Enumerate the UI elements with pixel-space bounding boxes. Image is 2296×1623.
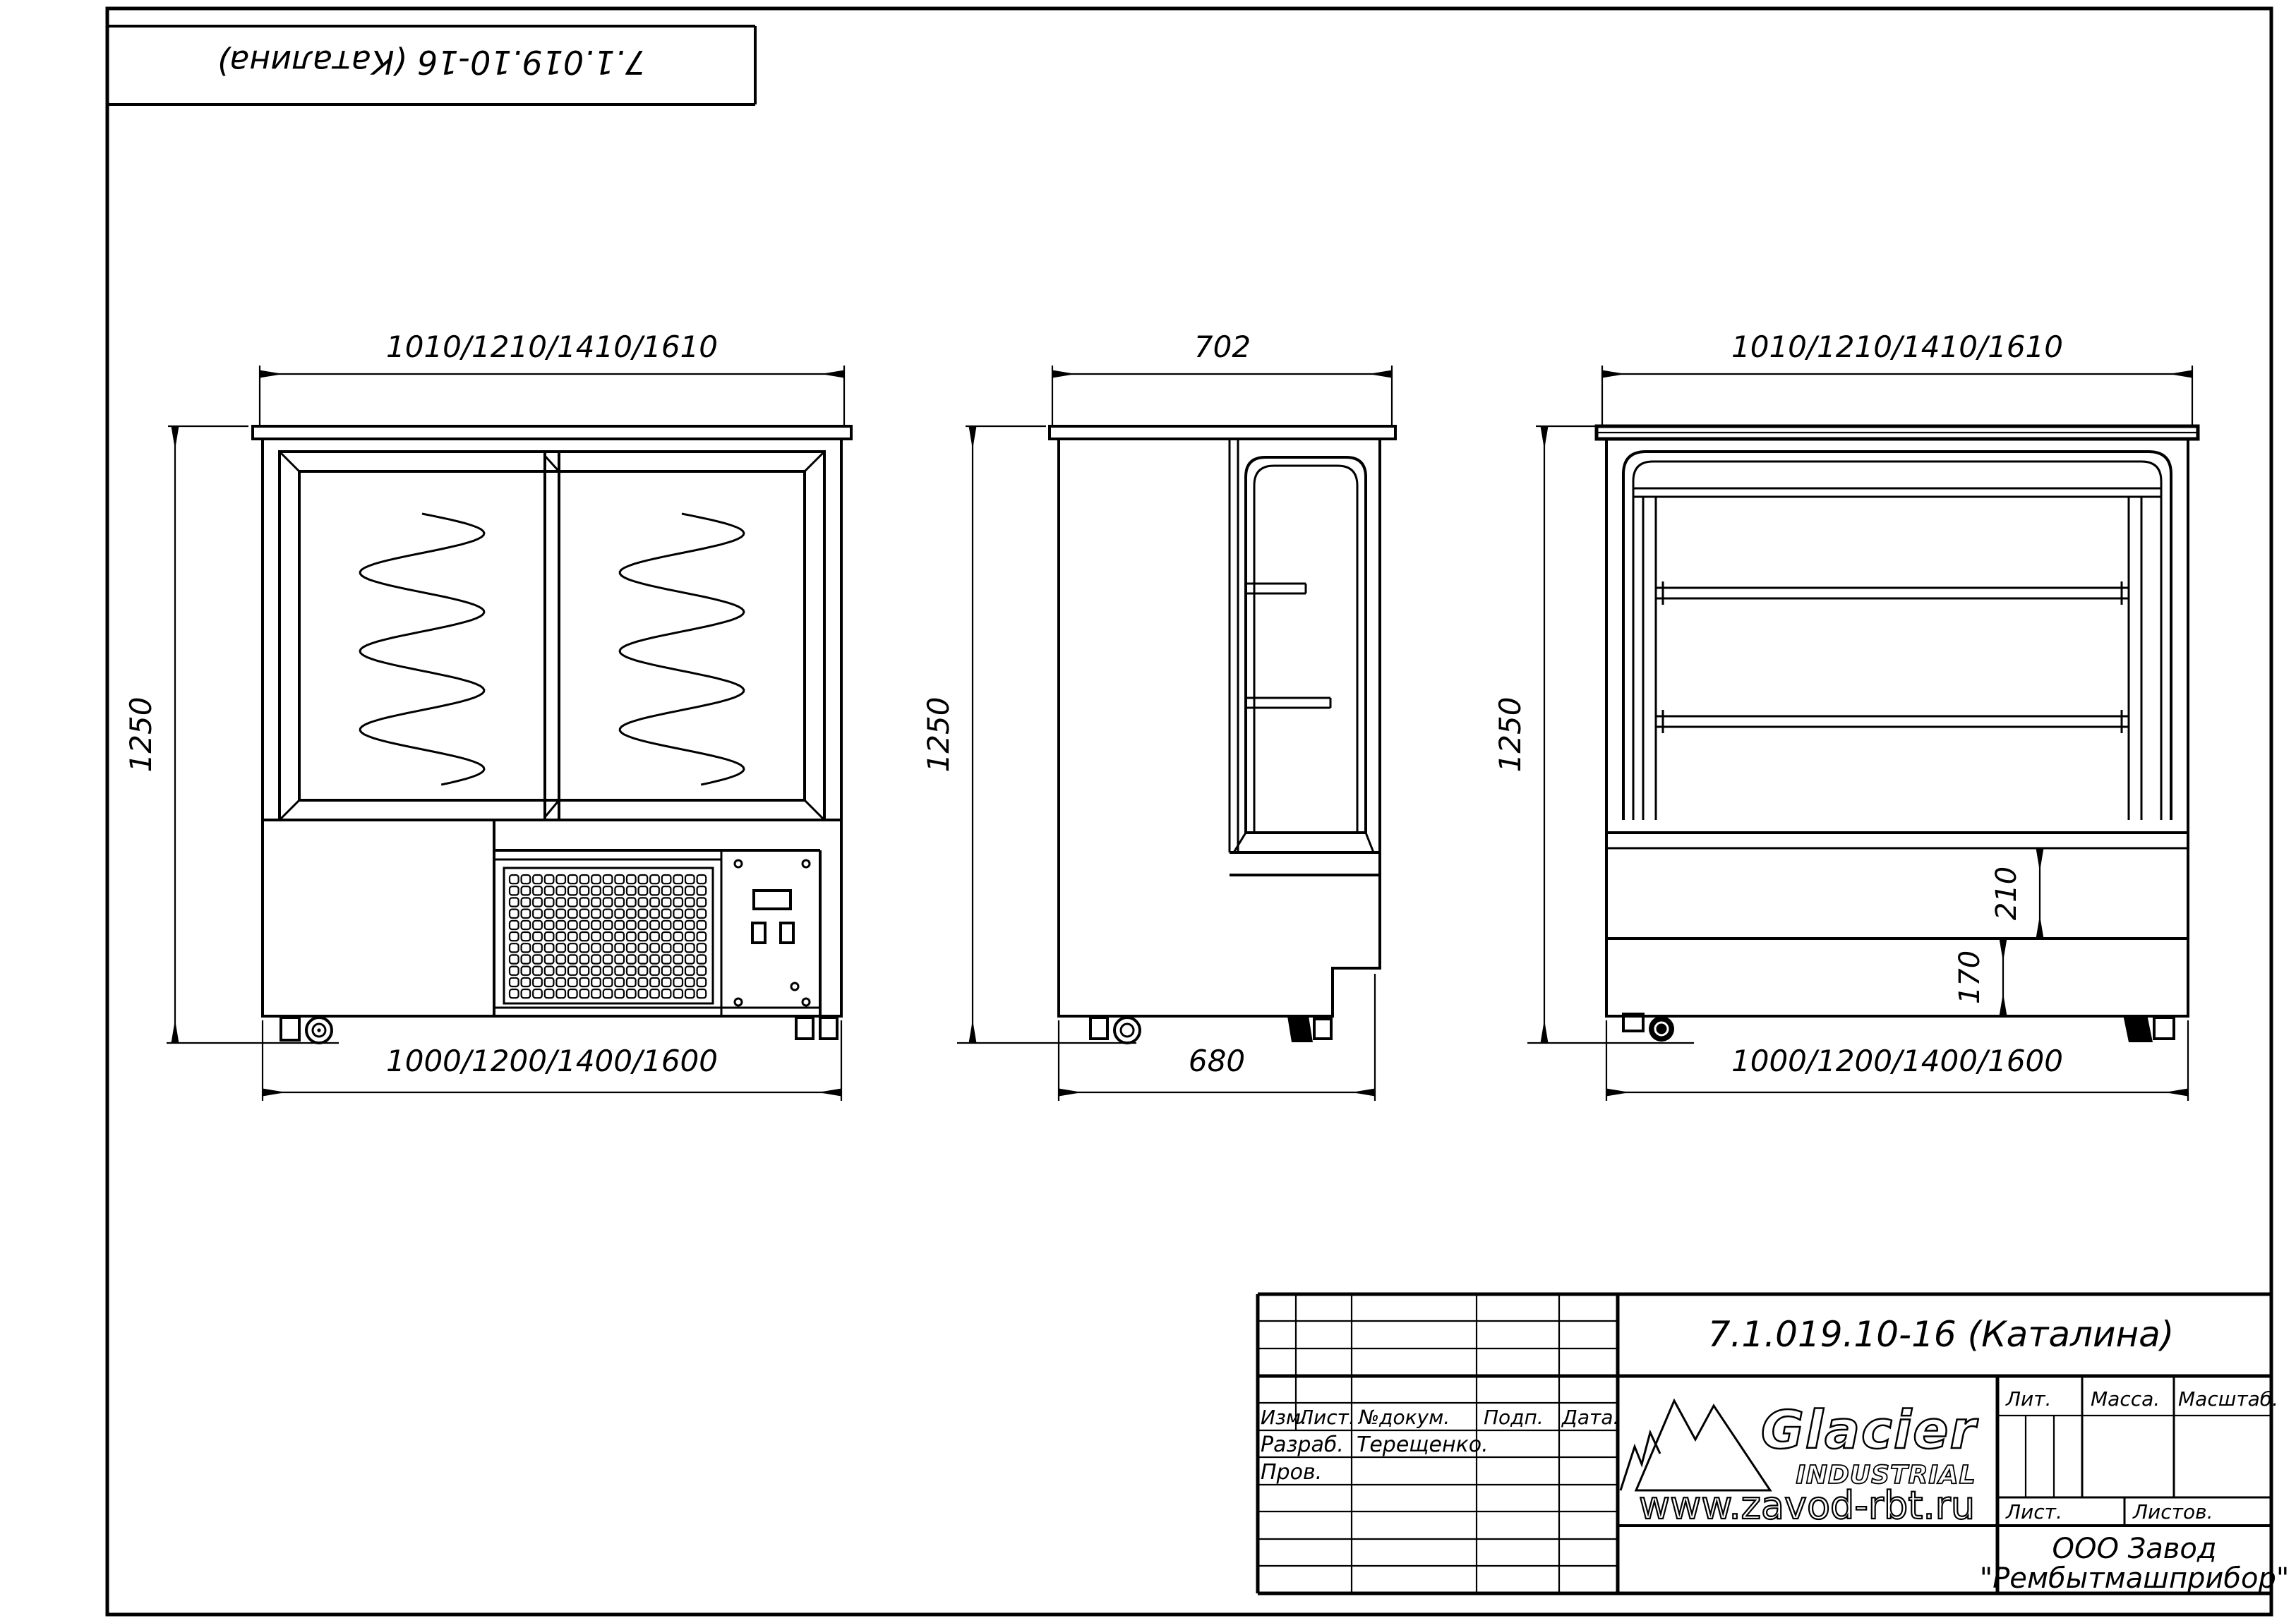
col-sign: Подп. bbox=[1484, 1406, 1544, 1429]
screw bbox=[735, 998, 742, 1006]
logo-website: www.zavod-rbt.ru bbox=[1639, 1483, 1975, 1528]
prop-sheets: Листов. bbox=[2132, 1500, 2213, 1524]
rear-width-top-dim: 1010/1210/1410/1610 bbox=[1731, 330, 2063, 364]
front-width-bottom-dim: 1000/1200/1400/1600 bbox=[386, 1044, 718, 1078]
col-doc: №докум. bbox=[1357, 1406, 1450, 1429]
rear-casters bbox=[1623, 1014, 2174, 1042]
rear-view: 1010/1210/1410/1610 1250 210 170 1000/12… bbox=[1493, 330, 2198, 1101]
control-panel bbox=[735, 860, 810, 1006]
glacier-logo: Glacier INDUSTRIAL www.zavod-rbt.ru bbox=[1621, 1400, 1978, 1528]
role-developed: Разраб. bbox=[1261, 1432, 1344, 1457]
prop-lit: Лит. bbox=[2005, 1387, 2051, 1411]
rear-base-lower-dim: 170 bbox=[1954, 951, 1986, 1004]
screw bbox=[803, 998, 810, 1006]
col-list: Лист. bbox=[1298, 1406, 1355, 1429]
inverted-designation-stamp: 7.1.019.10-16 (Каталина) bbox=[107, 26, 755, 104]
side-depth-bottom-dim: 680 bbox=[1189, 1044, 1245, 1078]
company-line2: "Рембытмашприбор" bbox=[1980, 1562, 2290, 1595]
col-date: Дата. bbox=[1561, 1406, 1619, 1429]
controller-display bbox=[754, 891, 791, 909]
role-developed-by: Терещенко. bbox=[1357, 1432, 1489, 1457]
company-line1: ООО Завод bbox=[2052, 1533, 2216, 1565]
vent-grille-frame bbox=[504, 868, 713, 1003]
screw bbox=[791, 983, 798, 990]
rear-height-dim: 1250 bbox=[1493, 697, 1527, 773]
prop-scale: Масштаб. bbox=[2178, 1387, 2278, 1411]
front-view: 1010/1210/1410/1610 1250 1000/1200/1400/… bbox=[124, 330, 851, 1101]
technical-drawing: 7.1.019.10-16 (Каталина) bbox=[0, 0, 2296, 1623]
front-width-top-dim: 1010/1210/1410/1610 bbox=[386, 330, 718, 364]
side-casters bbox=[1090, 1016, 1331, 1043]
sheet-frame bbox=[107, 8, 2271, 1615]
prop-mass: Масса. bbox=[2091, 1387, 2160, 1411]
front-dimensions: 1010/1210/1410/1610 1250 1000/1200/1400/… bbox=[124, 330, 844, 1101]
role-checked: Пров. bbox=[1261, 1460, 1322, 1485]
side-shelves bbox=[1246, 584, 1330, 708]
glass-wave-right bbox=[620, 514, 744, 785]
screw bbox=[803, 860, 810, 867]
side-view: 702 1250 680 bbox=[921, 330, 1395, 1101]
prop-sheet: Лист. bbox=[2005, 1500, 2062, 1524]
title-block: Изм. Лист. №докум. Подп. Дата. Разраб. Т… bbox=[1258, 1294, 2289, 1595]
panel-button bbox=[752, 923, 765, 943]
rear-base-upper-dim: 210 bbox=[1990, 867, 2023, 920]
side-depth-top-dim: 702 bbox=[1194, 330, 1251, 364]
side-height-dim: 1250 bbox=[921, 697, 956, 773]
screw bbox=[735, 860, 742, 867]
front-height-dim: 1250 bbox=[124, 697, 158, 773]
logo-brand: Glacier bbox=[1761, 1400, 1978, 1461]
vent-grille-perforation bbox=[510, 875, 706, 998]
side-dimensions: 702 1250 680 bbox=[921, 330, 1392, 1101]
designation-top-text: 7.1.019.10-16 (Каталина) bbox=[217, 43, 646, 81]
rear-shelves bbox=[1656, 581, 2129, 733]
panel-button bbox=[781, 923, 793, 943]
glass-wave-left bbox=[360, 514, 484, 785]
rear-width-bottom-dim: 1000/1200/1400/1600 bbox=[1731, 1044, 2063, 1078]
title-designation: 7.1.019.10-16 (Каталина) bbox=[1708, 1314, 2175, 1355]
front-casters bbox=[281, 1018, 837, 1043]
